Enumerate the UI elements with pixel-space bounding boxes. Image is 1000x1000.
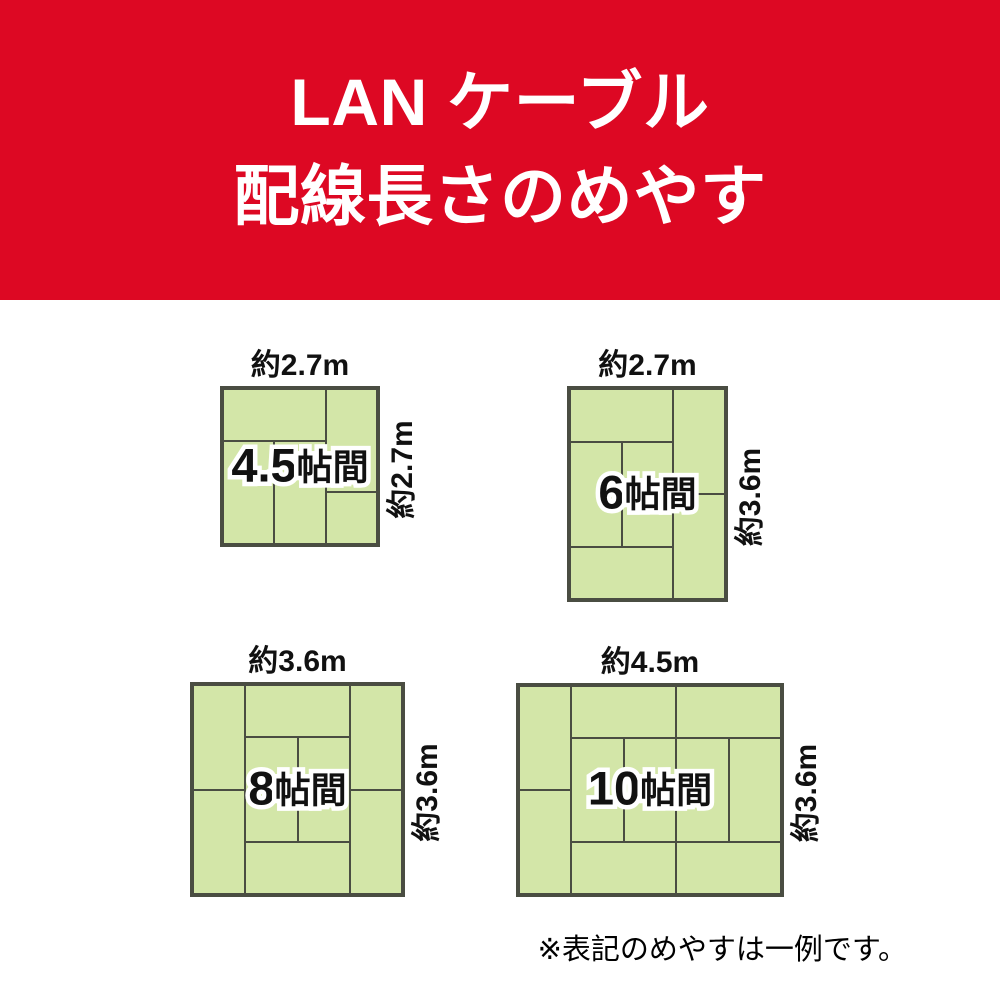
room-6jo: 6帖間約2.7m約3.6m: [567, 386, 728, 602]
room-size-label: 6帖間: [598, 469, 696, 516]
tatami-mat: [729, 738, 781, 842]
tatami-mat: [519, 790, 571, 894]
room-4-5jo: 4.5帖間約2.7m約2.7m: [220, 386, 380, 547]
room-10jo: 10帖間約4.5m約3.6m: [516, 683, 784, 897]
width-dimension-label: 約2.7m: [570, 349, 725, 383]
tatami-mat: [570, 389, 673, 442]
tatami-mat: [223, 389, 326, 441]
room-size-unit: 帖間: [275, 769, 347, 810]
footnote: ※表記のめやすは一例です。: [538, 926, 907, 968]
tatami-mat: [570, 547, 673, 600]
room-size-number: 4.5: [231, 438, 296, 491]
tatami-mat: [519, 686, 571, 790]
tatami-mat: [571, 842, 676, 894]
room-8jo: 8帖間約3.6m約3.6m: [190, 682, 405, 897]
tatami-mat: [571, 686, 676, 738]
tatami-mat: [193, 685, 245, 790]
tatami-mat: [326, 492, 377, 544]
width-dimension-label: 約4.5m: [519, 646, 781, 680]
width-dimension-label: 約2.7m: [223, 349, 377, 383]
rooms-diagram: 4.5帖間約2.7m約2.7m6帖間約2.7m約3.6m8帖間約3.6m約3.6…: [0, 0, 1000, 1000]
room-size-label: 4.5帖間: [231, 441, 368, 488]
room-size-unit: 帖間: [297, 446, 369, 487]
height-dimension-label: 約3.6m: [734, 389, 768, 605]
room-size-number: 10: [588, 762, 640, 815]
height-dimension-label: 約2.7m: [386, 389, 420, 550]
tatami-mat: [676, 842, 781, 894]
height-dimension-label: 約3.6m: [790, 686, 824, 900]
tatami-mat: [193, 790, 245, 895]
tatami-mat: [676, 686, 781, 738]
height-dimension-label: 約3.6m: [411, 685, 445, 900]
room-size-unit: 帖間: [640, 770, 712, 811]
tatami-mat: [245, 685, 350, 737]
width-dimension-label: 約3.6m: [193, 645, 402, 679]
room-size-unit: 帖間: [625, 474, 697, 515]
room-size-number: 8: [248, 761, 274, 814]
tatami-mat: [350, 685, 402, 790]
tatami-mat: [350, 790, 402, 895]
tatami-mat: [245, 842, 350, 894]
room-size-label: 8帖間: [248, 764, 346, 811]
room-size-label: 10帖間: [588, 765, 712, 812]
room-size-number: 6: [598, 466, 624, 519]
